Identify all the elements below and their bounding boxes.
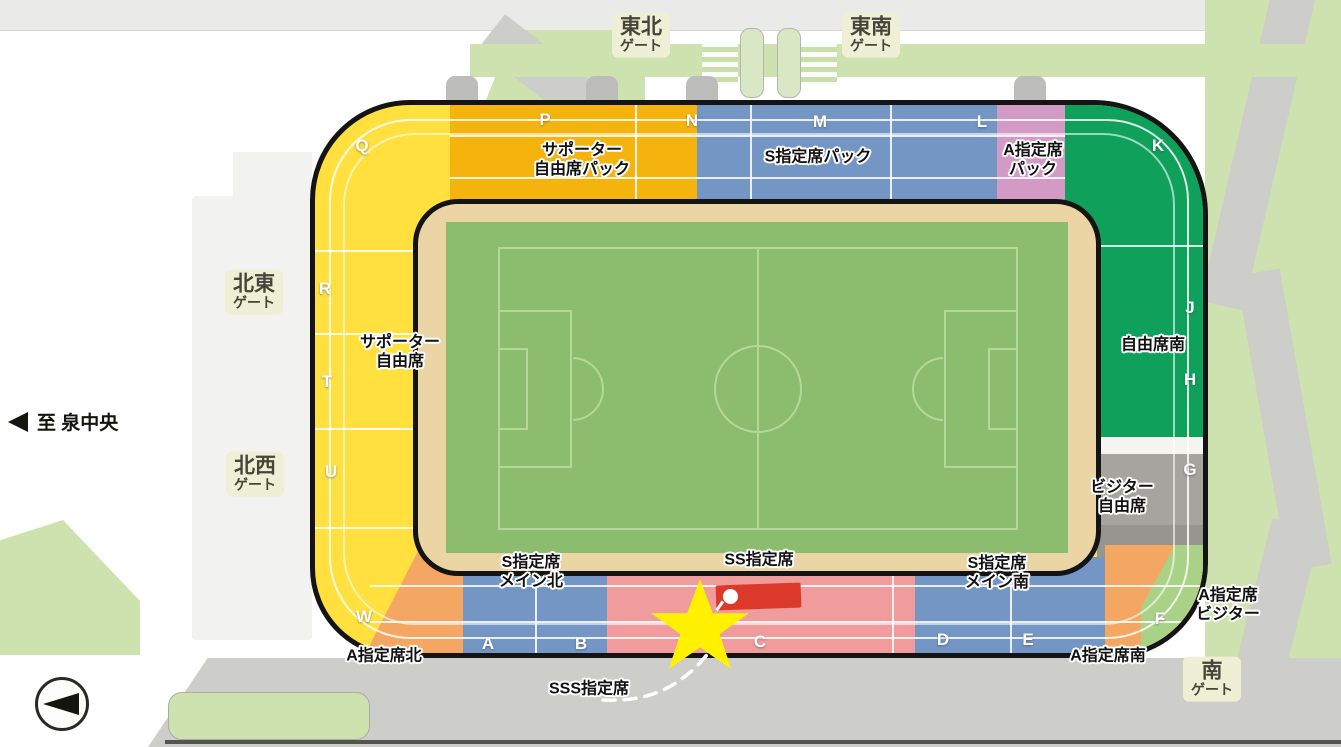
block-letter-w: W <box>356 607 372 627</box>
compass-north-icon <box>35 677 89 731</box>
direction-sign-izumi-chuo: 至 泉中央 <box>8 408 118 435</box>
walkway-green-band <box>470 44 1341 77</box>
block-letter-t: T <box>322 372 332 392</box>
label-visitor-free: ビジター 自由席 <box>1090 478 1154 516</box>
gate-label-tonan: 東南 ゲート <box>842 13 900 58</box>
sss-seat-block-marker <box>716 583 802 611</box>
label-free-seat-south: 自由席南 <box>1121 335 1185 354</box>
stadium-seat-map: Q P N M L K R T U W J H G F A B C D E サポ… <box>0 0 1341 747</box>
label-s-reserved-main-south: S指定席 メイン南 <box>965 554 1029 592</box>
seat-location-dot <box>723 589 739 605</box>
stadium-entrance-tab <box>446 76 478 102</box>
top-road-strip <box>0 0 1341 31</box>
crosswalk-right <box>801 42 837 84</box>
block-letter-u: U <box>325 462 337 482</box>
aisle-line <box>315 428 420 430</box>
stadium-entrance-tab <box>1014 76 1046 102</box>
pitch-goal-area-left <box>498 348 528 430</box>
west-plaza <box>192 196 312 640</box>
block-letter-a: A <box>482 634 494 654</box>
west-plaza-upper <box>233 152 312 200</box>
label-s-reserved-main-north: S指定席 メイン北 <box>499 553 563 591</box>
block-letter-l: L <box>977 112 987 132</box>
pitch-goal-area-right <box>988 348 1018 430</box>
stadium-entrance-tab <box>686 76 718 102</box>
label-ss-reserved: SS指定席 <box>724 550 793 569</box>
seat-location-dot-tail <box>715 601 724 612</box>
gate-label-tohoku: 東北 ゲート <box>612 13 670 58</box>
pitch-center-circle <box>714 345 802 433</box>
block-letter-g: G <box>1183 460 1196 480</box>
label-a-reserved-south: A指定席南 <box>1070 646 1146 665</box>
block-letter-p: P <box>539 110 550 130</box>
soccer-pitch <box>446 222 1068 553</box>
label-supporter-free-back-pack: サポーター 自由席パック <box>534 141 630 179</box>
block-letter-n: N <box>686 111 698 131</box>
gate-label-hokuto: 北東 ゲート <box>225 270 283 315</box>
block-letter-c: C <box>754 632 766 652</box>
aisle-line <box>315 250 420 252</box>
block-letter-m: M <box>813 112 827 132</box>
park-area-southwest <box>0 520 140 655</box>
south-boundary-line <box>165 740 1341 744</box>
gate-label-minami: 南 ゲート <box>1183 657 1241 702</box>
label-a-reserved-back-pack: A指定席 パック <box>1003 141 1063 179</box>
road-green-island <box>168 692 370 740</box>
label-supporter-free: サポーター 自由席 <box>360 333 440 371</box>
left-arrow-icon <box>8 412 28 432</box>
label-a-reserved-north: A指定席北 <box>346 646 422 665</box>
block-letter-e: E <box>1022 630 1033 650</box>
block-letter-b: B <box>575 634 587 654</box>
aisle-line <box>315 527 420 529</box>
gate-label-hokusei: 北西 ゲート <box>226 452 284 497</box>
block-letter-f: F <box>1155 609 1165 629</box>
label-a-reserved-visitor: A指定席 ビジター <box>1196 586 1260 624</box>
block-letter-j: J <box>1185 298 1194 318</box>
block-letter-k: K <box>1152 136 1164 156</box>
label-s-reserved-back: S指定席パック <box>765 147 872 166</box>
section-divider-band <box>1097 437 1203 454</box>
walkway-island-left <box>740 28 764 98</box>
label-sss-reserved: SSS指定席 <box>549 679 629 698</box>
field-track <box>413 199 1101 576</box>
block-letter-q: Q <box>355 136 368 156</box>
walkway-island-right <box>777 28 801 98</box>
compass-needle <box>43 693 79 715</box>
block-letter-d: D <box>937 630 949 650</box>
block-letter-h: H <box>1184 370 1196 390</box>
stadium-entrance-tab <box>586 76 618 102</box>
block-letter-r: R <box>319 279 331 299</box>
